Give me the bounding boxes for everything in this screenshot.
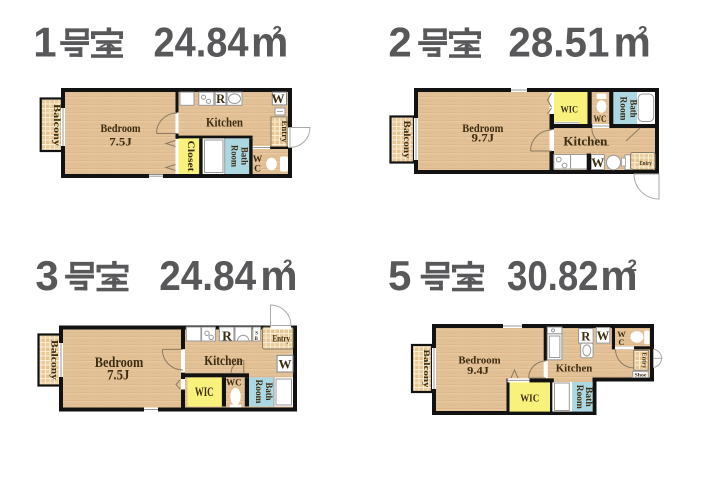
svg-text:W: W — [279, 356, 292, 371]
svg-text:Kitchen: Kitchen — [563, 133, 608, 148]
svg-text:R: R — [216, 92, 226, 106]
svg-text:WC: WC — [226, 378, 242, 388]
svg-text:Balcony: Balcony — [422, 350, 432, 389]
svg-text:5: 5 — [388, 252, 411, 299]
svg-text:Kitchen: Kitchen — [204, 354, 243, 369]
svg-text:30.82: 30.82 — [507, 252, 599, 299]
svg-text:Kitchen: Kitchen — [206, 115, 244, 130]
svg-text:Room: Room — [254, 380, 264, 405]
svg-text:Closet: Closet — [185, 141, 195, 173]
svg-text:W: W — [272, 91, 285, 106]
svg-text:Bedroom: Bedroom — [458, 355, 501, 366]
svg-text:S: S — [255, 332, 258, 337]
svg-text:WIC: WIC — [195, 384, 214, 399]
svg-text:Bath: Bath — [264, 383, 274, 401]
svg-text:WC: WC — [594, 115, 607, 125]
svg-text:2: 2 — [628, 256, 637, 275]
svg-text:2: 2 — [273, 23, 282, 42]
svg-text:Room: Room — [229, 145, 239, 167]
svg-text:Bath: Bath — [239, 147, 249, 166]
svg-text:9.7J: 9.7J — [472, 131, 495, 145]
svg-text:Kitchen: Kitchen — [556, 363, 593, 374]
svg-text:7.5J: 7.5J — [107, 367, 129, 383]
svg-text:W: W — [253, 155, 263, 165]
svg-text:9.4J: 9.4J — [467, 366, 489, 377]
svg-text:Entry: Entry — [639, 161, 652, 167]
svg-text:W: W — [591, 155, 604, 170]
svg-text:7.5J: 7.5J — [109, 134, 132, 148]
svg-text:1: 1 — [33, 19, 56, 66]
svg-text:28.51: 28.51 — [508, 19, 609, 66]
svg-text:Bath: Bath — [629, 100, 639, 118]
svg-text:Bedroom: Bedroom — [101, 121, 141, 135]
svg-text:24.84: 24.84 — [159, 252, 257, 299]
svg-text:WIC: WIC — [520, 394, 539, 405]
svg-text:Balcony: Balcony — [50, 340, 60, 381]
svg-text:m: m — [251, 19, 288, 66]
svg-text:R: R — [222, 328, 232, 343]
svg-text:24.84: 24.84 — [154, 19, 250, 66]
svg-text:C: C — [618, 337, 624, 347]
svg-text:Shoe: Shoe — [635, 373, 648, 379]
svg-text:Room: Room — [575, 385, 585, 410]
svg-text:3: 3 — [35, 252, 58, 299]
svg-text:WIC: WIC — [560, 106, 578, 116]
svg-text:Balcony: Balcony — [402, 121, 412, 160]
svg-text:W: W — [597, 329, 610, 343]
svg-text:2: 2 — [283, 256, 292, 275]
svg-text:Balcony: Balcony — [52, 104, 62, 147]
svg-text:Entry: Entry — [272, 334, 290, 344]
svg-text:Entry: Entry — [641, 352, 647, 368]
svg-text:2: 2 — [388, 19, 411, 66]
svg-text:Room: Room — [619, 97, 629, 122]
svg-text:2: 2 — [638, 23, 647, 42]
svg-text:R: R — [581, 329, 591, 343]
svg-text:C: C — [254, 165, 261, 175]
